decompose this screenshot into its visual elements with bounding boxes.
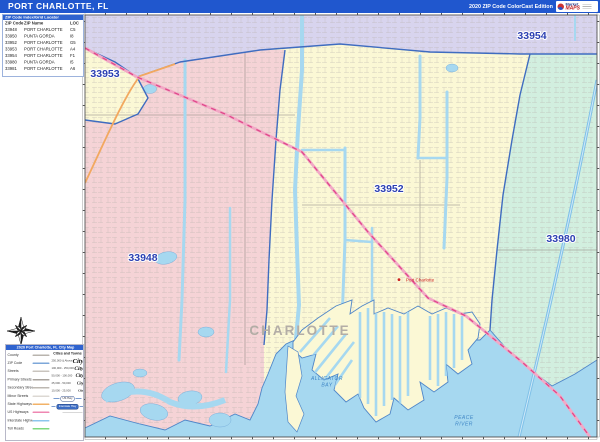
city-marker [398, 278, 401, 281]
legend-line-items: CountyZIP CodeStreetsPrimary StreetsSeco… [8, 351, 52, 433]
table-row: 33981PORT CHARLOTTEA6 [3, 66, 84, 73]
legend-line-sample [33, 379, 50, 381]
table-cell: A6 [70, 66, 83, 73]
map-canvas: CHARLOTTE ALLIGATOR BAY PEACE RIVER Port… [0, 0, 600, 442]
legend-city-sizes: 250,000 & AboveCity100,000 - 250,000City… [52, 357, 84, 395]
svg-text:ALLIGATOR: ALLIGATOR [310, 376, 343, 382]
svg-text:PEACE: PEACE [454, 415, 474, 421]
svg-text:BAY: BAY [321, 383, 332, 389]
zip-label-33952: 33952 [374, 183, 403, 195]
legend-line-sample [33, 371, 50, 373]
svg-text:RIVER: RIVER [455, 422, 473, 428]
city-sample: City [74, 365, 83, 371]
city-sample: City [76, 373, 84, 378]
shield-line [52, 406, 56, 407]
legend-item-label: Streets [8, 370, 33, 374]
zip-label-33953: 33953 [90, 68, 119, 80]
table-cell: 33981 [5, 66, 24, 73]
legend-item-label: Toll Roads [8, 427, 33, 431]
legend-item: Minor Streets [8, 392, 52, 400]
legend-item-label: ZIP Code [8, 362, 33, 366]
legend-item: State Highways [8, 400, 52, 408]
legend-title: 2020 Port Charlotte, FL City Map [6, 345, 84, 350]
zip-label-33948: 33948 [128, 252, 157, 264]
legend-line-sample [33, 428, 50, 430]
water-label-peace-river: PEACE RIVER [454, 415, 474, 428]
legend-item-label: US Highways [8, 411, 33, 415]
city-label: Port Charlotte [406, 278, 435, 283]
map-poster-page: { "title_bar": { "title": "PORT CHARLOTT… [0, 0, 600, 442]
legend-item-label: Primary Streets [8, 378, 33, 382]
legend-item-label: County [8, 353, 33, 357]
legend-item-label: Interstate Highways [8, 419, 33, 423]
zip-label-33954: 33954 [517, 30, 546, 42]
legend-copyright-line [63, 412, 83, 413]
legend-line-sample [33, 363, 50, 365]
edition-label: 2020 ZIP Code ColorCast Edition [469, 3, 553, 9]
legend-item: ZIP Code [8, 359, 52, 367]
legend-line-sample [33, 354, 50, 356]
legend-item: Secondary Streets [8, 384, 52, 392]
city-size-range: 250,000 & Above [52, 359, 73, 362]
city-size-row: 25,000 - 50,000City [52, 380, 84, 388]
interstate-badge: Interstate Hwy [57, 404, 79, 410]
legend-line-sample [33, 420, 50, 422]
city-size-range: 25,000 - 50,000 [52, 382, 71, 385]
interstate-shield: Interstate Hwy [52, 403, 84, 411]
us-highway-badge: US Hwy [61, 396, 75, 402]
globe-logo-icon [558, 3, 565, 10]
table-cell: PORT CHARLOTTE [24, 66, 70, 73]
city-size-range: 100,000 - 250,000 [52, 367, 74, 370]
logo-tagline-lines [582, 4, 591, 8]
legend-item: Interstate Highways [8, 417, 52, 425]
city-size-range: 10,000 - 25,000 [52, 389, 71, 392]
page-title: PORT CHARLOTTE, FL [8, 0, 109, 13]
shield-line [75, 398, 81, 399]
legend-item: Primary Streets [8, 376, 52, 384]
title-bar: PORT CHARLOTTE, FL 2020 ZIP Code ColorCa… [0, 0, 600, 13]
legend-item: US Highways [8, 408, 52, 416]
legend-line-sample [33, 404, 50, 406]
city-size-row: 100,000 - 250,000City [52, 365, 84, 373]
legend-line-sample [33, 412, 50, 414]
zip-index-table: ZIP Code Index/Grid Locator ZIP CodeZIP … [2, 14, 84, 77]
legend-item-label: State Highways [8, 403, 33, 407]
city-size-range: 50,000 - 100,000 [52, 374, 73, 377]
shield-line [79, 406, 83, 407]
legend-item: Toll Roads [8, 425, 52, 433]
legend-item-label: Secondary Streets [8, 386, 33, 390]
shield-line [54, 398, 60, 399]
county-label: CHARLOTTE [249, 323, 350, 338]
legend-item: Streets [8, 367, 52, 375]
city-size-row: 50,000 - 100,000City [52, 372, 84, 380]
zip-label-33980: 33980 [546, 233, 575, 245]
us-highway-shield: US Hwy [52, 395, 84, 403]
zip-table-body: 33948PORT CHARLOTTEC533950PUNTA GORDAI83… [3, 27, 84, 73]
legend-item: County [8, 351, 52, 359]
map-legend: 2020 Port Charlotte, FL City Map CountyZ… [5, 344, 84, 441]
logo-text-secondary: MAPS [566, 6, 580, 11]
city-sample: City [73, 357, 84, 365]
city-sample: City [78, 389, 83, 393]
legend-item-label: Minor Streets [8, 394, 33, 398]
brand-logo: Market MAPS [556, 1, 598, 12]
city-size-row: 10,000 - 25,000City [52, 387, 84, 395]
city-sample: City [77, 381, 84, 386]
legend-line-sample [33, 395, 50, 397]
city-size-row: 250,000 & AboveCity [52, 357, 84, 365]
legend-line-sample [33, 387, 50, 389]
